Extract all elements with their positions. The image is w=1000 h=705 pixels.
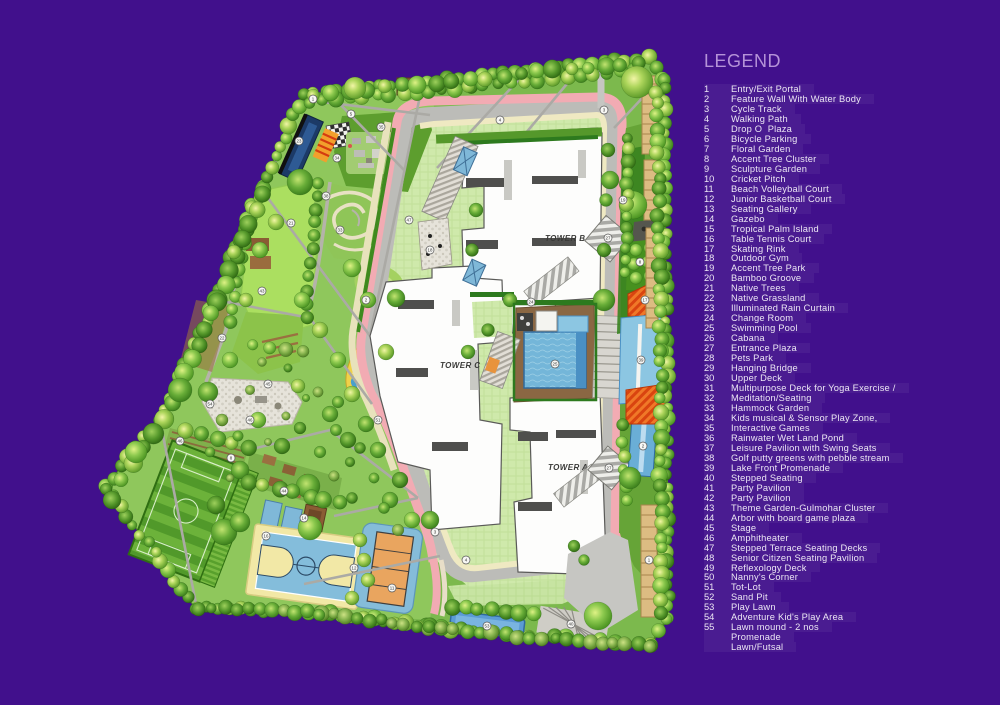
svg-text:46: 46 (248, 418, 253, 423)
svg-text:18: 18 (428, 248, 433, 253)
svg-text:47: 47 (407, 218, 412, 223)
svg-text:51: 51 (376, 418, 381, 423)
svg-text:46: 46 (178, 439, 183, 444)
svg-text:TOWER A: TOWER A (548, 463, 588, 472)
svg-text:TOWER C: TOWER C (440, 361, 480, 370)
svg-text:16: 16 (264, 534, 269, 539)
svg-text:38: 38 (324, 194, 329, 199)
svg-text:24: 24 (529, 300, 534, 305)
svg-text:25: 25 (553, 362, 558, 367)
svg-text:34: 34 (335, 156, 340, 161)
svg-text:53: 53 (485, 624, 490, 629)
svg-text:12: 12 (352, 566, 357, 571)
svg-text:23: 23 (297, 139, 302, 144)
svg-text:43: 43 (260, 289, 265, 294)
svg-text:14: 14 (302, 516, 307, 521)
svg-text:40: 40 (569, 622, 574, 627)
svg-text:54: 54 (208, 402, 213, 407)
svg-text:27: 27 (607, 466, 612, 471)
svg-text:22: 22 (220, 336, 225, 341)
svg-text:44: 44 (282, 489, 287, 494)
svg-text:21: 21 (289, 221, 294, 226)
svg-text:33: 33 (338, 228, 343, 233)
svg-text:35: 35 (379, 125, 384, 130)
svg-text:11: 11 (390, 586, 395, 591)
svg-text:39: 39 (639, 358, 644, 363)
svg-text:27: 27 (606, 236, 611, 241)
svg-text:45: 45 (266, 382, 271, 387)
svg-text:19: 19 (621, 198, 626, 203)
svg-text:TOWER B: TOWER B (545, 234, 585, 243)
svg-text:17: 17 (643, 298, 648, 303)
